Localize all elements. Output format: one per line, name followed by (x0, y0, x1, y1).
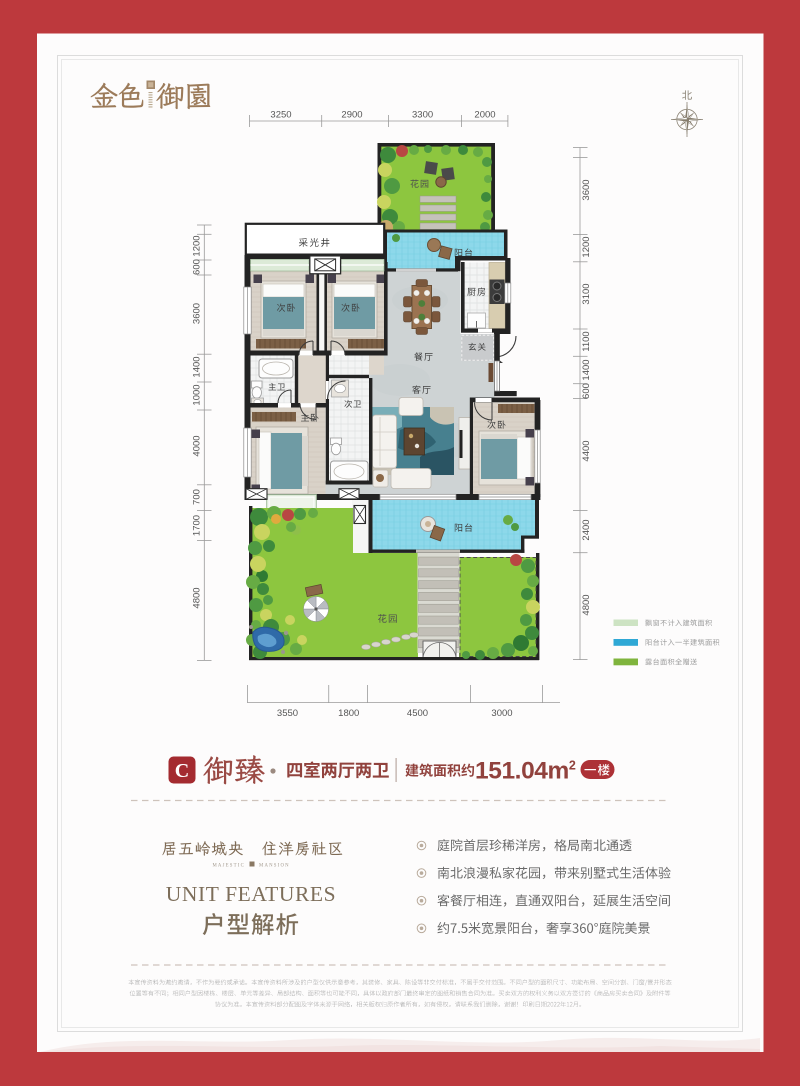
svg-text:3600: 3600 (581, 179, 592, 200)
svg-text:2900: 2900 (341, 110, 362, 121)
svg-text:3600: 3600 (192, 303, 203, 324)
svg-text:2400: 2400 (581, 519, 592, 540)
svg-text:1000: 1000 (192, 384, 203, 405)
svg-text:1800: 1800 (338, 708, 359, 719)
svg-text:3550: 3550 (277, 708, 298, 719)
svg-text:MAJESTIC: MAJESTIC (212, 864, 245, 869)
svg-text:600: 600 (192, 259, 203, 275)
svg-text:600: 600 (581, 383, 592, 399)
svg-text:4800: 4800 (581, 594, 592, 615)
svg-text:151.04m2: 151.04m2 (475, 758, 576, 785)
svg-text:3250: 3250 (270, 110, 291, 121)
svg-text:1700: 1700 (192, 515, 203, 536)
svg-text:1400: 1400 (581, 359, 592, 380)
svg-text:3100: 3100 (581, 283, 592, 304)
svg-text:4000: 4000 (192, 435, 203, 456)
svg-text:1100: 1100 (581, 331, 592, 351)
svg-text:4400: 4400 (581, 440, 592, 461)
svg-text:C: C (175, 760, 189, 782)
svg-text:1400: 1400 (192, 356, 203, 377)
svg-text:1200: 1200 (192, 235, 203, 256)
svg-text:3300: 3300 (412, 110, 433, 121)
svg-text:MANSION: MANSION (259, 864, 290, 869)
svg-text:4800: 4800 (192, 587, 203, 608)
svg-text:UNIT FEATURES: UNIT FEATURES (166, 882, 336, 906)
svg-text:700: 700 (192, 489, 203, 505)
svg-text:2000: 2000 (474, 110, 495, 121)
svg-text:4500: 4500 (407, 708, 428, 719)
svg-text:3000: 3000 (491, 708, 512, 719)
svg-text:1200: 1200 (581, 236, 592, 257)
